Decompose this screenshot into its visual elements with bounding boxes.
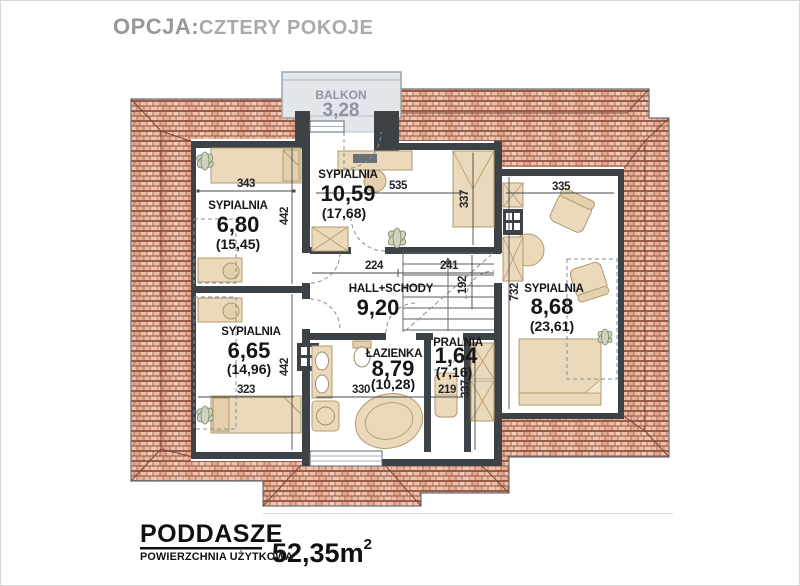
page-title: CZTERY POKOJE (199, 17, 373, 39)
bed (211, 148, 301, 183)
dim-label: 335 (552, 181, 571, 193)
dim-label: 219 (438, 384, 456, 396)
shower (312, 401, 339, 431)
footer-divider (263, 513, 673, 514)
wardrobe (503, 237, 523, 281)
desk (198, 258, 242, 282)
room-label-sypialnia-1: SYPIALNIA 6,80 (15,45) (208, 200, 268, 252)
svg-text:SYPIALNIA: SYPIALNIA (318, 169, 378, 181)
svg-text:HALL+SCHODY: HALL+SCHODY (349, 283, 434, 295)
dim-label: 330 (352, 384, 370, 396)
svg-text:SYPIALNIA: SYPIALNIA (208, 200, 268, 212)
dim-label: 192 (457, 276, 469, 294)
footer-area: 52,35m2 (272, 536, 372, 568)
dim-label: 241 (440, 260, 459, 272)
bathroom-window-band (310, 451, 382, 466)
desk (198, 298, 242, 322)
dim-label: 343 (237, 178, 255, 190)
footer-subtitle: POWIERZCHNIA UŻYTKOWA (140, 550, 293, 563)
svg-text:9,20: 9,20 (357, 295, 400, 320)
footer-underline (140, 547, 262, 550)
svg-text:6,80: 6,80 (217, 212, 260, 237)
svg-text:(7,16): (7,16) (436, 364, 473, 380)
dim-label: 732 (509, 283, 521, 301)
svg-text:(23,61): (23,61) (530, 318, 574, 334)
svg-text:(17,68): (17,68) (322, 205, 366, 221)
balcony-area: 3,28 (323, 100, 360, 121)
bed (211, 396, 301, 433)
svg-text:(15,45): (15,45) (216, 236, 260, 252)
footer: PODDASZE POWIERZCHNIA UŻYTKOWA 52,35m2 (140, 513, 673, 568)
svg-text:10,59: 10,59 (320, 181, 375, 206)
dim-label: 535 (389, 180, 408, 192)
wardrobe (471, 381, 494, 421)
header: OPCJA: CZTERY POKOJE (113, 14, 373, 39)
bed (519, 339, 601, 405)
svg-text:(10,28): (10,28) (371, 376, 415, 392)
sink-vanity (312, 346, 332, 398)
dim-label: 442 (279, 358, 291, 376)
bench (312, 227, 348, 251)
dim-label: 337 (459, 190, 471, 208)
header-prefix: OPCJA: (113, 14, 199, 39)
wardrobe (453, 151, 494, 227)
svg-text:SYPIALNIA: SYPIALNIA (221, 326, 281, 338)
flue-icon (503, 209, 523, 235)
dim-label: 323 (237, 384, 255, 396)
footer-title: PODDASZE (140, 520, 283, 548)
svg-text:8,68: 8,68 (531, 294, 574, 319)
wardrobe (503, 183, 523, 207)
dim-label: 442 (279, 207, 291, 225)
floor-plan-canvas: OPCJA: CZTERY POKOJE BALKON 3,28 (1, 1, 800, 586)
floor-plan-page: OPCJA: CZTERY POKOJE BALKON 3,28 (0, 0, 800, 586)
dim-label: 224 (365, 260, 384, 272)
room-label-lazienka: ŁAZIENKA 8,79 (10,28) (366, 348, 423, 392)
dim-label: 337 (460, 380, 472, 398)
svg-text:6,65: 6,65 (228, 338, 271, 363)
svg-text:(14,96): (14,96) (227, 361, 271, 377)
